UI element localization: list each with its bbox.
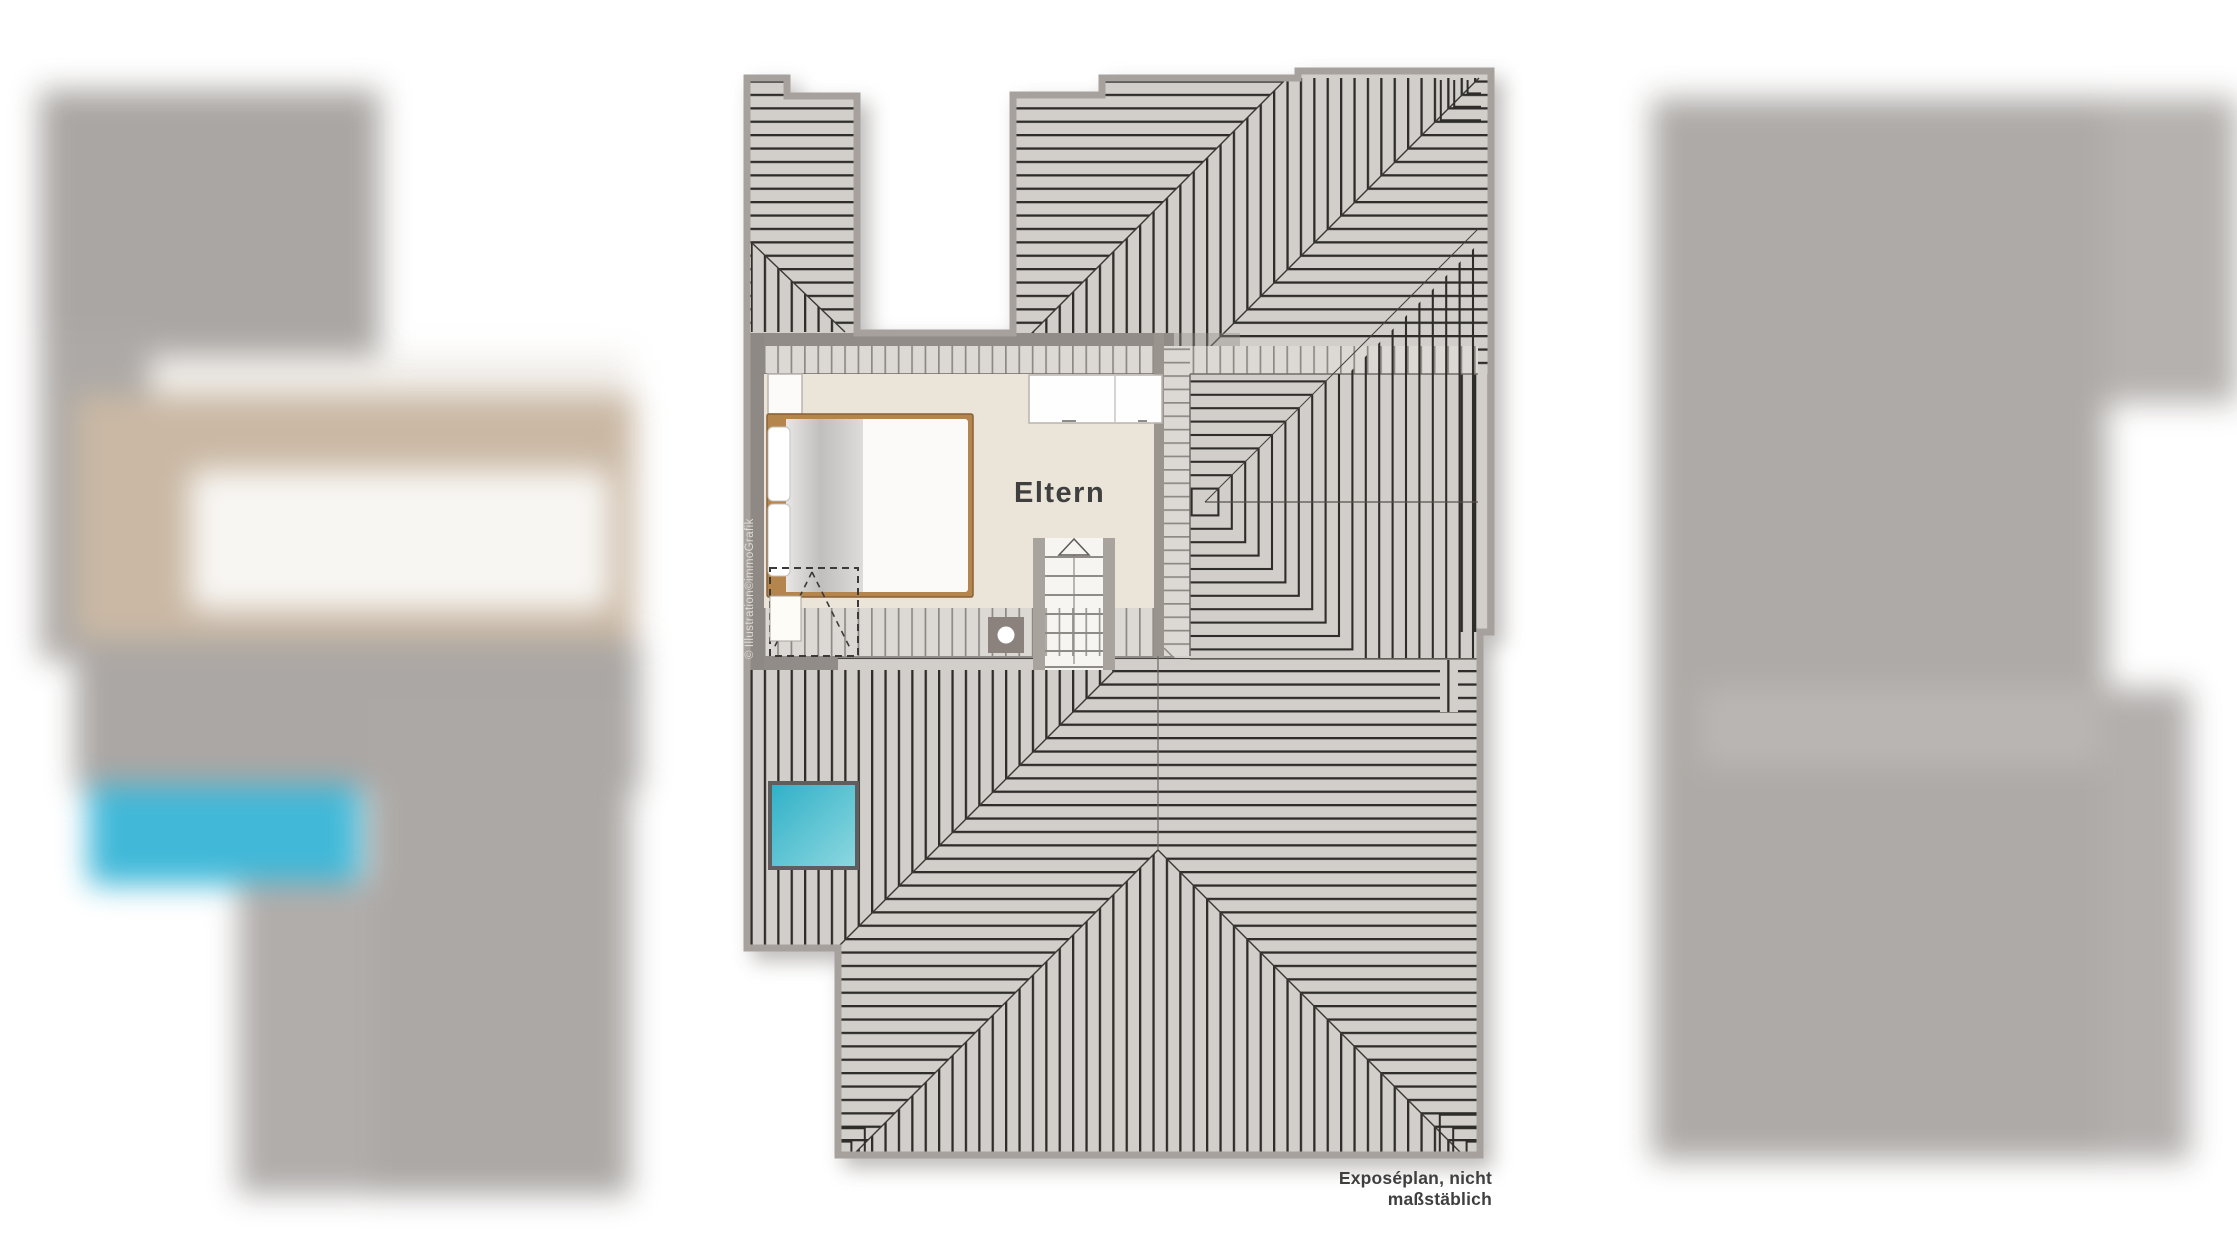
illustration-credit: ©Illustration©immoGrafik xyxy=(744,487,756,659)
floor-plan xyxy=(690,40,1530,1220)
eave-band-north xyxy=(747,346,1478,374)
skylight-window xyxy=(770,783,857,868)
pillow xyxy=(768,504,790,576)
stair-stringer xyxy=(1103,538,1115,670)
roof-mini-strip xyxy=(1440,660,1458,712)
roof-edge-strip xyxy=(1458,374,1491,632)
wall-band-top-ext xyxy=(1174,333,1240,346)
credit-text: Illustration©immoGrafik xyxy=(744,518,756,647)
copyright-icon: © xyxy=(744,650,756,659)
stair-stringer xyxy=(1033,538,1045,670)
plan-caption: Exposéplan, nicht maßstäblich xyxy=(1240,1168,1492,1210)
wardrobe xyxy=(1029,375,1162,423)
double-bed xyxy=(767,414,973,597)
eave-band-east xyxy=(1164,346,1190,656)
chimney xyxy=(988,617,1024,653)
room-label-eltern: Eltern xyxy=(1014,477,1134,510)
blur-roof-block xyxy=(2105,688,2190,1160)
pillow xyxy=(768,427,790,501)
page: { "document": { "type": "real-estate flo… xyxy=(0,0,2237,1258)
blur-roof-block xyxy=(1652,98,2107,1160)
blur-roof-block xyxy=(2105,98,2237,403)
staircase xyxy=(1033,538,1115,670)
blur-light-band xyxy=(1700,688,2100,766)
nightstand xyxy=(768,374,802,414)
